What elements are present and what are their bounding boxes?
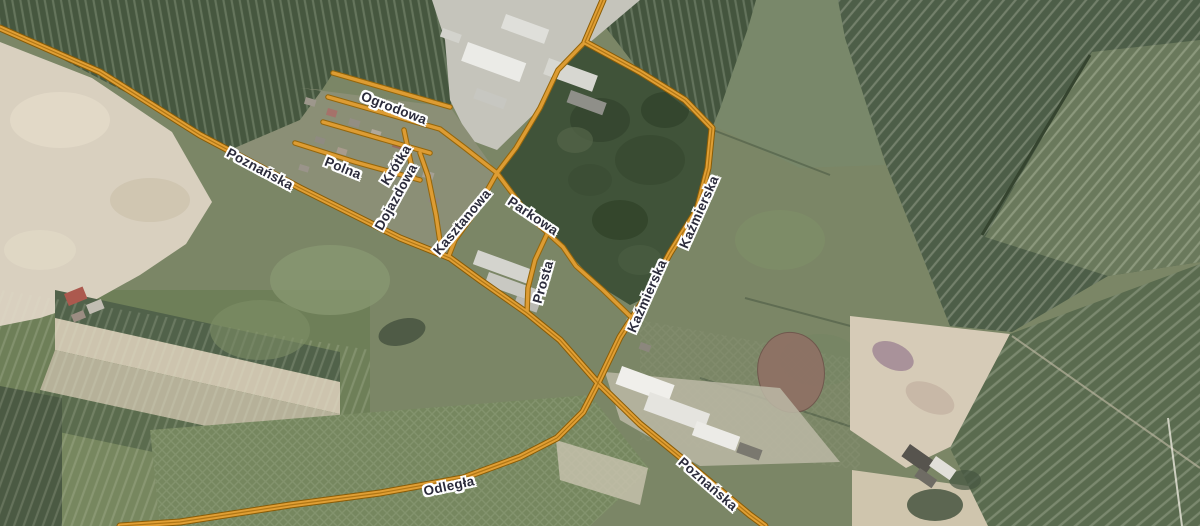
map-canvas[interactable]: Ogrodowa Polna Krótka Dojazdowa Poznańsk… — [0, 0, 1200, 526]
terrain-layer — [0, 0, 1200, 526]
satellite-imagery — [0, 0, 1200, 526]
